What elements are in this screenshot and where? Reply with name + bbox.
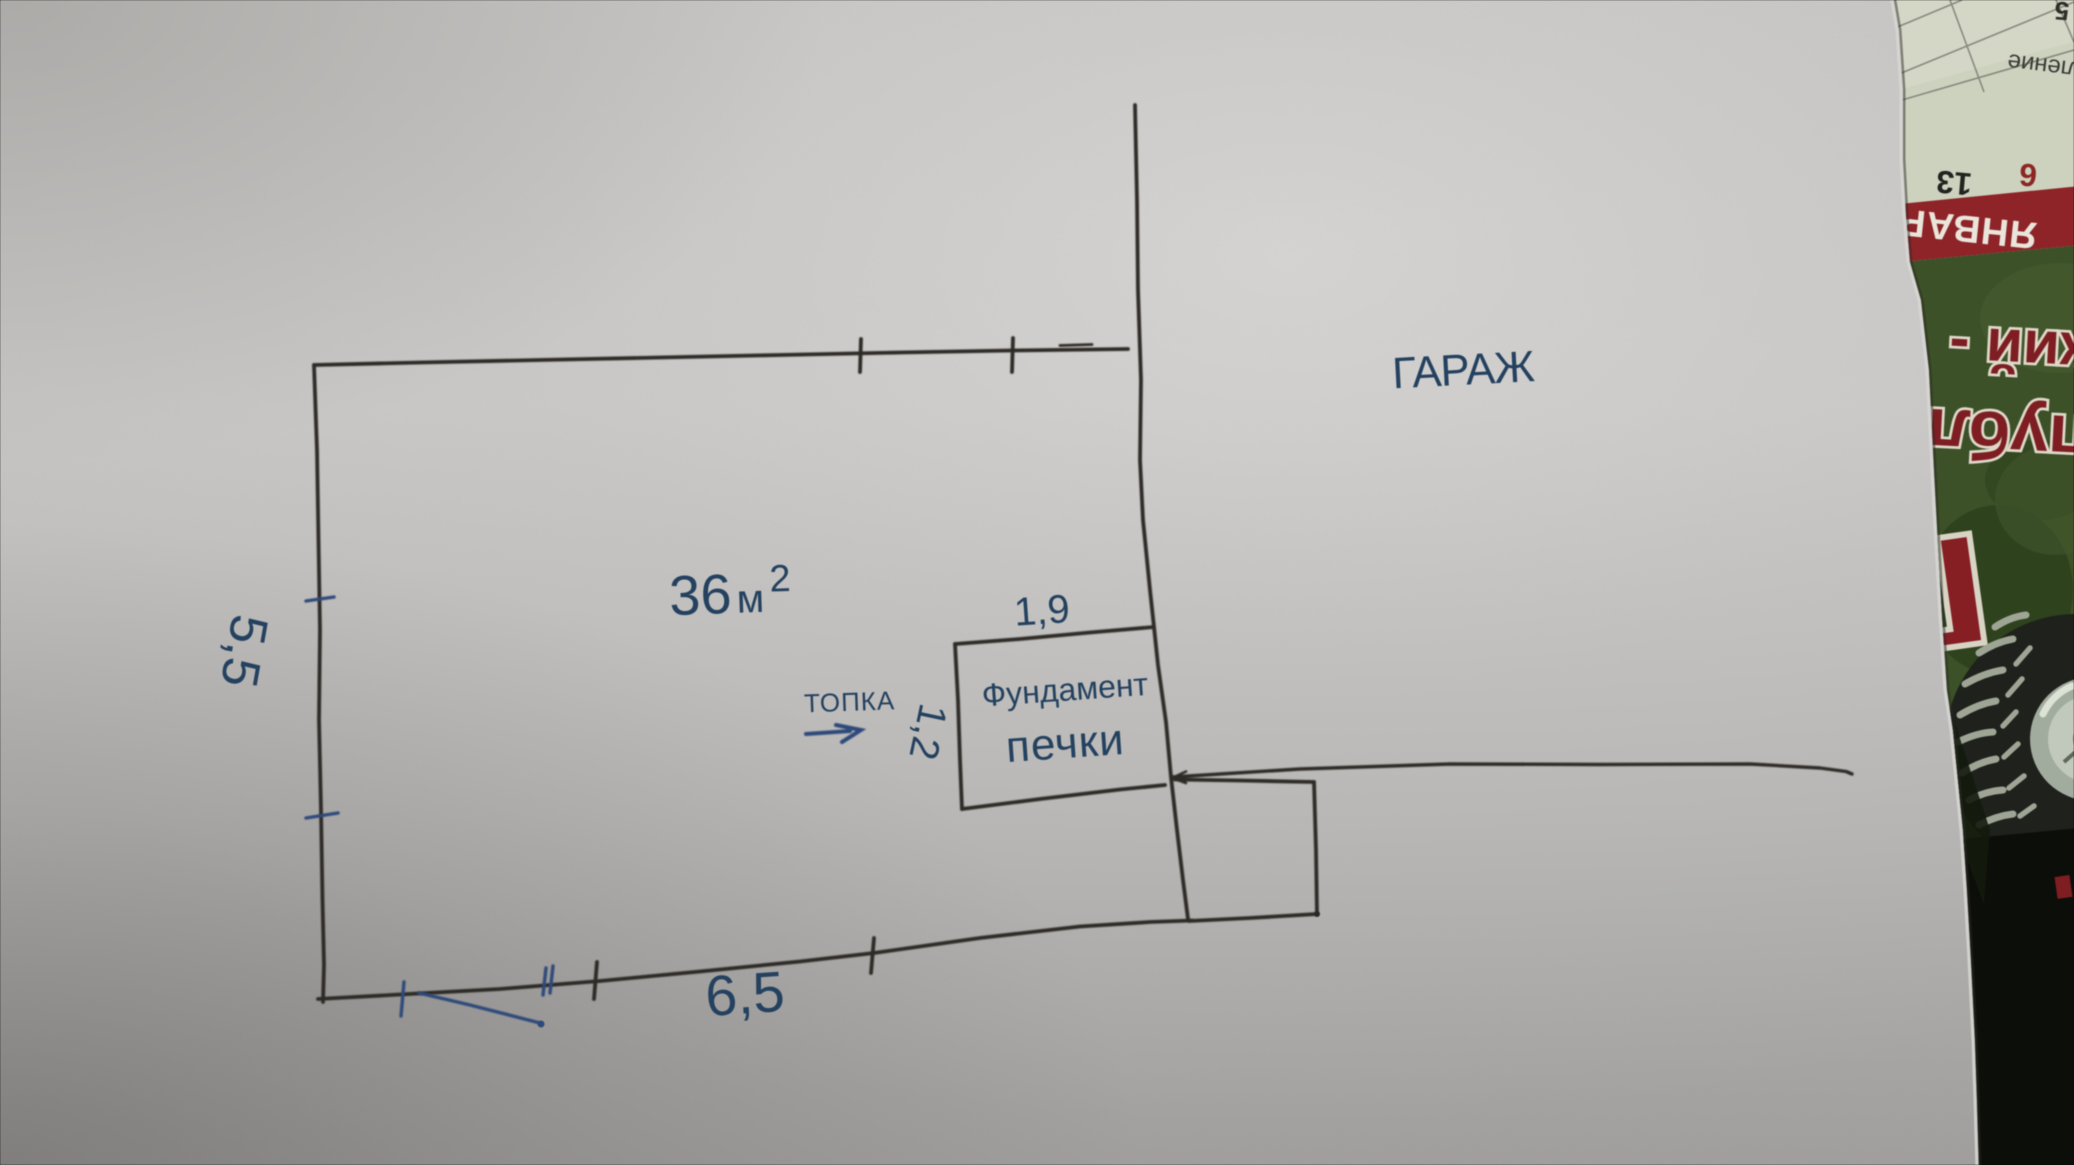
svg-text:5,5: 5,5 <box>209 610 279 691</box>
svg-text:6,5: 6,5 <box>703 960 787 1029</box>
svg-text:1,9: 1,9 <box>1013 587 1072 635</box>
svg-text:6: 6 <box>2018 156 2039 193</box>
svg-text:ГАРАЖ: ГАРАЖ <box>1391 342 1536 398</box>
svg-text:печки: печки <box>1004 715 1126 772</box>
svg-text:5: 5 <box>2053 0 2070 27</box>
svg-text:публ: публ <box>1925 394 2074 478</box>
svg-text:ТОПКА: ТОПКА <box>804 685 896 718</box>
svg-text:13: 13 <box>1935 164 1974 203</box>
svg-text:ский -: ский - <box>1947 313 2074 389</box>
